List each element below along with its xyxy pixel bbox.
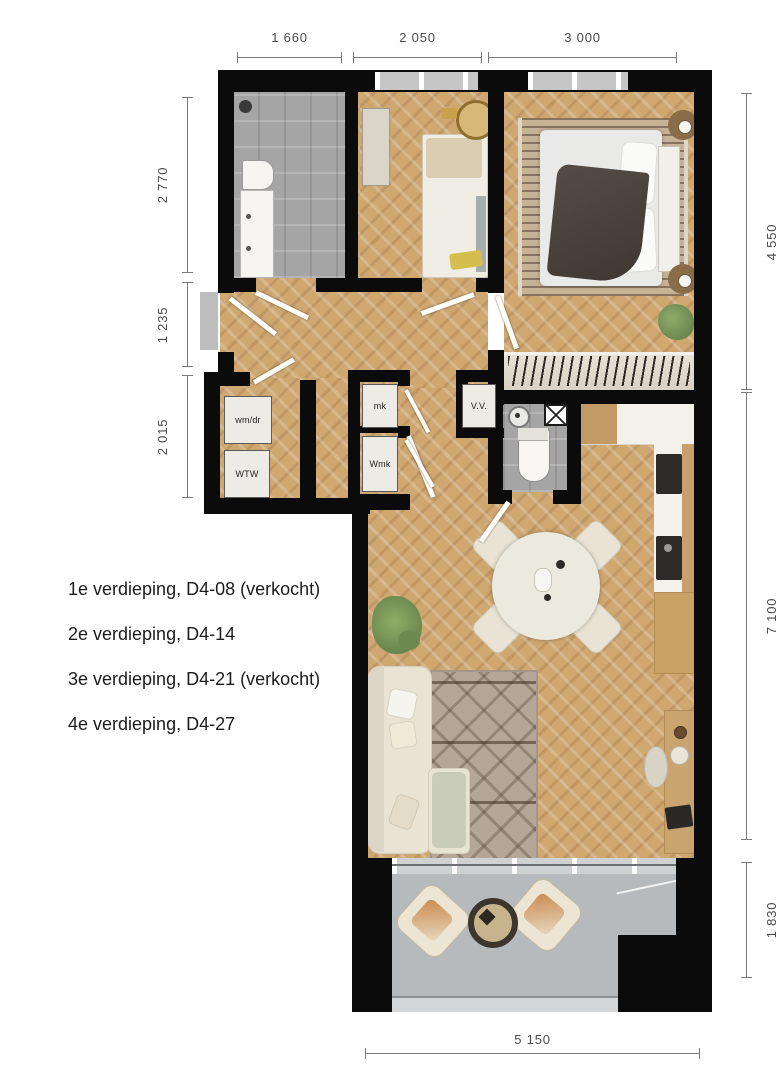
nightstand-bottom-lamp: [678, 274, 692, 288]
kitchen-faucet: [664, 544, 672, 552]
dining-table-bowl: [556, 560, 565, 569]
dining-table-dot: [544, 594, 551, 601]
sofa-throw: [432, 772, 466, 848]
wall-bedroom2-bottom-b: [476, 278, 488, 292]
vanity-faucet-1: [246, 214, 251, 219]
kitchen-cooktop: [656, 454, 682, 494]
desk-laptop: [665, 804, 694, 829]
bedroom2-wardrobe: [362, 108, 390, 186]
dining-table-vase: [534, 568, 552, 592]
dim-right-3-line: [746, 862, 747, 978]
dim-left-3-line: [187, 375, 188, 498]
wall-balcony-right-upper: [676, 858, 712, 938]
dim-top-2: 2 050: [353, 30, 482, 58]
wtw-closet: WTW: [224, 450, 270, 498]
wall-tech-top-stub: [204, 372, 250, 386]
kitchen-counter-top-wood: [581, 404, 617, 444]
dim-top-1-label: 1 660: [237, 30, 342, 45]
wall-tech-right: [300, 380, 316, 500]
wall-balcony-left: [352, 858, 392, 1012]
wall-bathroom-bottom-b: [316, 278, 358, 292]
dim-left-3-label: 2 015: [155, 418, 170, 455]
floor-list-item-2: 2e verdieping, D4-14: [68, 619, 320, 664]
floor-list-item-3: 3e verdieping, D4-21 (verkocht): [68, 664, 320, 709]
wall-mk-bottom: [348, 494, 410, 510]
dim-right-2-label: 7 100: [764, 598, 779, 635]
sofa-pillow-2: [388, 720, 417, 749]
shower-head: [239, 100, 252, 113]
balcony-table: [468, 898, 518, 948]
dim-top-1: 1 660: [237, 30, 342, 58]
wall-bathroom-bottom-a: [232, 278, 256, 292]
balcony-sliding-door: [392, 858, 676, 874]
dim-right-1-line: [746, 93, 747, 390]
kitchen-sink: [656, 536, 682, 580]
vanity-faucet-2: [246, 246, 251, 251]
wall-mk-right-stub-a: [398, 370, 410, 386]
floor-list-item-4: 4e verdieping, D4-27: [68, 709, 320, 754]
bathroom-vanity: [240, 190, 274, 278]
floor-plan-page: wm/dr WTW mk Wmk V.V. 1 660 2 050 3 000 …: [0, 0, 784, 1092]
dim-top-3-line: [488, 57, 677, 58]
wall-living-left: [352, 510, 368, 862]
wall-bathroom-right: [345, 92, 358, 278]
dim-top-2-line: [353, 57, 482, 58]
dim-left-2-label: 1 235: [155, 306, 170, 343]
dim-top-1-line: [237, 57, 342, 58]
wall-mk-left: [348, 370, 360, 512]
bedroom2-window: [375, 72, 478, 90]
nightstand-top-lamp: [678, 120, 692, 134]
desk-plant-pot: [670, 746, 689, 765]
bathroom-toilet: [242, 160, 274, 190]
double-bed-headboard: [658, 146, 680, 272]
floor-availability-list: 1e verdieping, D4-08 (verkocht) 2e verdi…: [68, 574, 320, 754]
dim-top-3-label: 3 000: [488, 30, 677, 45]
dim-right-3: 1 830: [746, 862, 776, 978]
wall-tech-bottom: [204, 498, 370, 514]
dim-top-2-label: 2 050: [353, 30, 482, 45]
dim-right-2: 7 100: [746, 392, 776, 840]
dim-top-3: 3 000: [488, 30, 677, 58]
ventilation-label: V.V.: [471, 401, 487, 411]
dim-left-1: 2 770: [158, 97, 188, 273]
wall-bedroom-divider: [488, 92, 504, 293]
wtw-label: WTW: [235, 469, 258, 479]
toilet-wc-cistern: [518, 428, 548, 441]
gold-sconce: [442, 108, 457, 119]
dim-right-1-label: 4 550: [764, 223, 779, 260]
wall-tech-left: [204, 372, 220, 514]
meter-cupboard-label: mk: [374, 401, 386, 411]
dim-left-1-label: 2 770: [155, 167, 170, 204]
kitchen-cabinet-low: [654, 592, 696, 674]
desk-cup: [674, 726, 687, 739]
master-plant: [658, 304, 694, 340]
sofa-backrest: [368, 666, 384, 852]
dim-right-2-line: [746, 392, 747, 840]
wall-left-upper: [218, 70, 234, 293]
master-bedroom-window: [528, 72, 628, 90]
kitchen-counter-right-wood-strip: [682, 444, 694, 592]
ventilation-closet: V.V.: [462, 384, 496, 428]
dim-right-1: 4 550: [746, 93, 776, 390]
dim-bottom-1-line: [365, 1053, 700, 1054]
wall-balcony-right-block: [618, 935, 712, 1012]
wall-toilet-right: [567, 398, 581, 500]
ventilation-x-icon: [544, 404, 568, 426]
dim-left-2-line: [187, 282, 188, 367]
balcony-railing: [392, 996, 622, 1012]
wall-master-bottom: [504, 390, 712, 404]
dim-left-1-line: [187, 97, 188, 273]
dim-bottom-1-label: 5 150: [365, 1032, 700, 1047]
dim-bottom-1: 5 150: [365, 1032, 700, 1054]
toilet-basin-drain: [515, 413, 520, 418]
washer-dryer-closet: wm/dr: [224, 396, 272, 444]
wardrobe-hangers: [508, 356, 690, 386]
wall-bedroom2-bottom-a: [358, 278, 422, 292]
meter-cupboard-closet: mk: [362, 384, 398, 428]
dim-left-2: 1 235: [158, 282, 188, 367]
desk-chair: [644, 746, 668, 788]
water-meter-label: Wmk: [369, 459, 390, 469]
dim-left-3: 2 015: [158, 375, 188, 498]
wall-toilet-bottom-b: [553, 490, 581, 504]
dim-right-3-label: 1 830: [764, 902, 779, 939]
wall-right-exterior: [694, 70, 712, 875]
water-meter-closet: Wmk: [362, 436, 398, 492]
floor-list-item-1: 1e verdieping, D4-08 (verkocht): [68, 574, 320, 619]
living-plant-shadow: [398, 630, 420, 650]
entrance-doormat: [200, 292, 218, 350]
sofa-pillow-1: [385, 687, 418, 720]
washer-dryer-label: wm/dr: [235, 415, 261, 425]
single-bed-pillows: [426, 138, 482, 178]
